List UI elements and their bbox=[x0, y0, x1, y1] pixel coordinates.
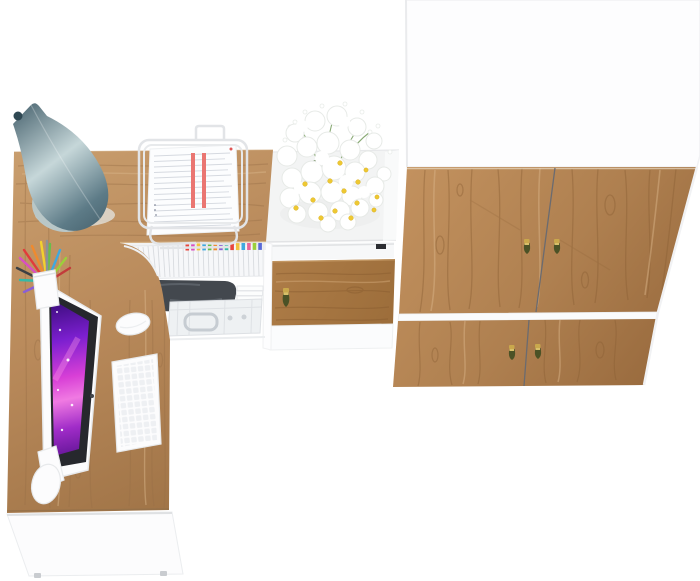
monitor-power-button bbox=[90, 394, 94, 398]
desk-foot bbox=[160, 571, 167, 576]
briefcase-latch bbox=[228, 316, 233, 321]
cabinet-left-divider bbox=[263, 242, 272, 350]
magazine-tab bbox=[258, 243, 262, 250]
furniture-render bbox=[0, 0, 700, 581]
wardrobe-top-left-edge bbox=[406, 0, 407, 167]
keyboard bbox=[112, 354, 161, 452]
desk-front-panel bbox=[7, 512, 183, 576]
cabinet-bottom-strip bbox=[270, 324, 393, 350]
paper-red-mark bbox=[230, 148, 233, 151]
red-stripe bbox=[202, 153, 206, 208]
wardrobe bbox=[393, 0, 700, 387]
magazine-tab bbox=[236, 243, 240, 250]
briefcase bbox=[168, 299, 262, 336]
magazine-tab bbox=[242, 243, 246, 250]
desk-foot bbox=[34, 573, 41, 578]
keyboard-keys bbox=[116, 359, 157, 447]
cabinet-drawer bbox=[271, 259, 395, 326]
magazine-tab bbox=[253, 243, 257, 250]
red-stripe bbox=[191, 153, 195, 208]
magazine-tab bbox=[247, 243, 251, 250]
lamp-cone-tip bbox=[14, 112, 23, 121]
cabinet-notch bbox=[376, 244, 386, 249]
render-canvas bbox=[0, 0, 700, 581]
briefcase-latch bbox=[242, 315, 247, 320]
document-stand bbox=[139, 126, 247, 248]
wardrobe-top bbox=[406, 0, 700, 167]
